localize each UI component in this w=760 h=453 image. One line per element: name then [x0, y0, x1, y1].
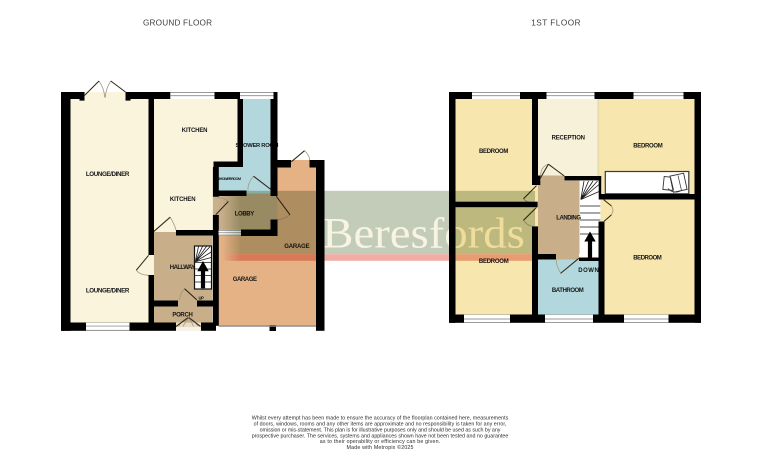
svg-text:UP: UP: [199, 295, 205, 300]
svg-text:PORCH: PORCH: [172, 312, 192, 318]
svg-text:GARAGE: GARAGE: [233, 277, 257, 283]
svg-text:LANDING: LANDING: [556, 215, 581, 221]
svg-text:LOUNGE/DINER: LOUNGE/DINER: [86, 171, 130, 178]
svg-text:DOWN: DOWN: [578, 268, 599, 274]
svg-text:BEDROOM: BEDROOM: [479, 149, 508, 155]
svg-text:Beresfords: Beresfords: [322, 210, 525, 257]
svg-text:KITCHEN: KITCHEN: [182, 128, 208, 134]
svg-text:RECEPTION: RECEPTION: [552, 135, 585, 141]
svg-text:BATHROOM: BATHROOM: [552, 288, 584, 294]
svg-text:Made with Metropix ©2025: Made with Metropix ©2025: [347, 444, 414, 451]
svg-text:KITCHEN: KITCHEN: [170, 197, 196, 203]
svg-text:LOUNGE/DINER: LOUNGE/DINER: [86, 287, 130, 294]
svg-text:1ST FLOOR: 1ST FLOOR: [531, 19, 580, 28]
svg-text:BEDROOM: BEDROOM: [633, 144, 663, 150]
svg-text:GROUND FLOOR: GROUND FLOOR: [143, 19, 212, 28]
svg-text:HALLWAY: HALLWAY: [170, 265, 195, 271]
svg-text:BEDROOM: BEDROOM: [633, 255, 662, 261]
svg-text:SHOWER ROOM: SHOWER ROOM: [218, 177, 241, 181]
